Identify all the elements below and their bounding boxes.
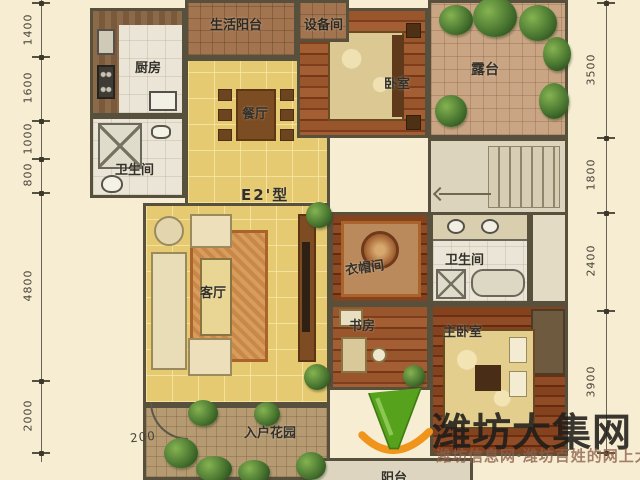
dimension-dot [604,309,609,314]
plant-icon [435,95,467,127]
room-label-bath1: 卫生间 [115,159,154,178]
desk-chair [371,347,387,363]
bathtub-icon [471,269,525,297]
room-label-dining: 餐厅 [242,103,268,122]
dim-label-left-2000: 2000 [22,393,35,439]
room-label-bath2: 卫生间 [445,249,484,268]
dimension-dot [39,157,44,162]
plant-icon [306,202,332,228]
staircase [428,138,568,216]
plant-icon [188,400,218,426]
kitchen-sink-icon [97,29,115,55]
dim-label-right-3900: 3900 [585,359,598,405]
room-terrace: 露台 [428,0,568,138]
plant-icon [296,452,326,480]
room-label-service-balcony: 生活阳台 [210,14,262,33]
kitchen-counter [93,11,182,25]
dimension-dot [39,1,44,6]
shower-icon [436,269,466,299]
dimension-dot [604,136,609,141]
sofa [151,252,187,370]
plant-icon [539,83,569,119]
room-label-bedroom2: 卧室 [384,73,410,92]
room-label-terrace: 露台 [471,59,499,79]
dimension-dot [39,379,44,384]
chair [280,129,294,141]
site-logo-icon [352,383,436,467]
appliance-icon [149,91,177,111]
dim-label-left-1600: 1600 [22,65,35,111]
plant-icon [543,37,571,71]
dimension-dot [604,1,609,6]
room-label-study: 书房 [349,315,375,334]
room-kitchen: 厨房 [90,8,185,116]
shaft [530,212,568,304]
left-dimension-line [41,0,42,462]
side-table [154,216,184,246]
nightstand [406,115,421,130]
room-label-equipment: 设备间 [304,14,343,33]
nightstand [406,23,421,38]
chair [280,109,294,121]
dimension-dot [39,191,44,196]
plant-icon [304,364,330,390]
dim-label-right-3500: 3500 [585,47,598,93]
room-label-living: 客厅 [200,282,226,301]
pillow [509,337,527,363]
plant-icon [238,460,270,480]
chair [280,89,294,101]
right-dimension-line [606,0,607,456]
room-bath2: 卫生间 [430,212,530,304]
dim-label-left-4800: 4800 [22,263,35,309]
sink-icon [151,125,171,139]
room-label-balcony: 阳台 [381,467,407,480]
plant-icon [519,5,557,41]
armchair [190,214,232,248]
chair [218,89,232,101]
dim-label-door-200: 200 [129,429,156,446]
unit-type-label: E2'型 [241,184,289,205]
sink-icon [481,219,499,234]
room-label-kitchen: 厨房 [135,57,161,76]
chair [218,129,232,141]
dim-label-right-2400: 2400 [585,238,598,284]
room-label-entry-garden: 入户花园 [244,422,296,441]
room-living: 客厅 [143,203,330,405]
room-service-balcony: 生活阳台 [185,0,297,58]
dim-label-left-800: 800 [22,152,35,198]
dimension-dot [39,55,44,60]
watermark-tagline: 潍坊信息网·潍坊百姓的网上大集 [436,445,640,466]
dimension-dot [39,451,44,456]
room-equipment: 设备间 [297,0,349,42]
dimension-dot [39,119,44,124]
dimension-dot [604,211,609,216]
floor-plan-canvas: 1400 1600 1000 800 4800 2000 3500 1800 2… [0,0,640,480]
bed-blanket [475,365,501,391]
room-bath1: 卫生间 [90,116,185,198]
stair-treads [488,146,560,208]
wardrobe [531,309,565,375]
tv-icon [302,242,310,332]
plant-icon [439,5,473,35]
desk [341,337,367,373]
dim-label-right-1800: 1800 [585,152,598,198]
plant-icon [164,438,198,468]
pillow [509,371,527,397]
armchair [188,338,232,376]
sink-icon [447,219,465,234]
room-label-master: 主卧室 [443,321,482,340]
stove-icon [97,65,115,99]
stair-arrow-head [433,187,447,201]
room-study: 书房 [330,304,430,390]
chair [218,109,232,121]
plant-icon [196,456,232,480]
room-cloakroom: 衣帽间 [330,212,430,304]
plant-icon [473,0,517,37]
dim-label-left-1400: 1400 [22,7,35,53]
